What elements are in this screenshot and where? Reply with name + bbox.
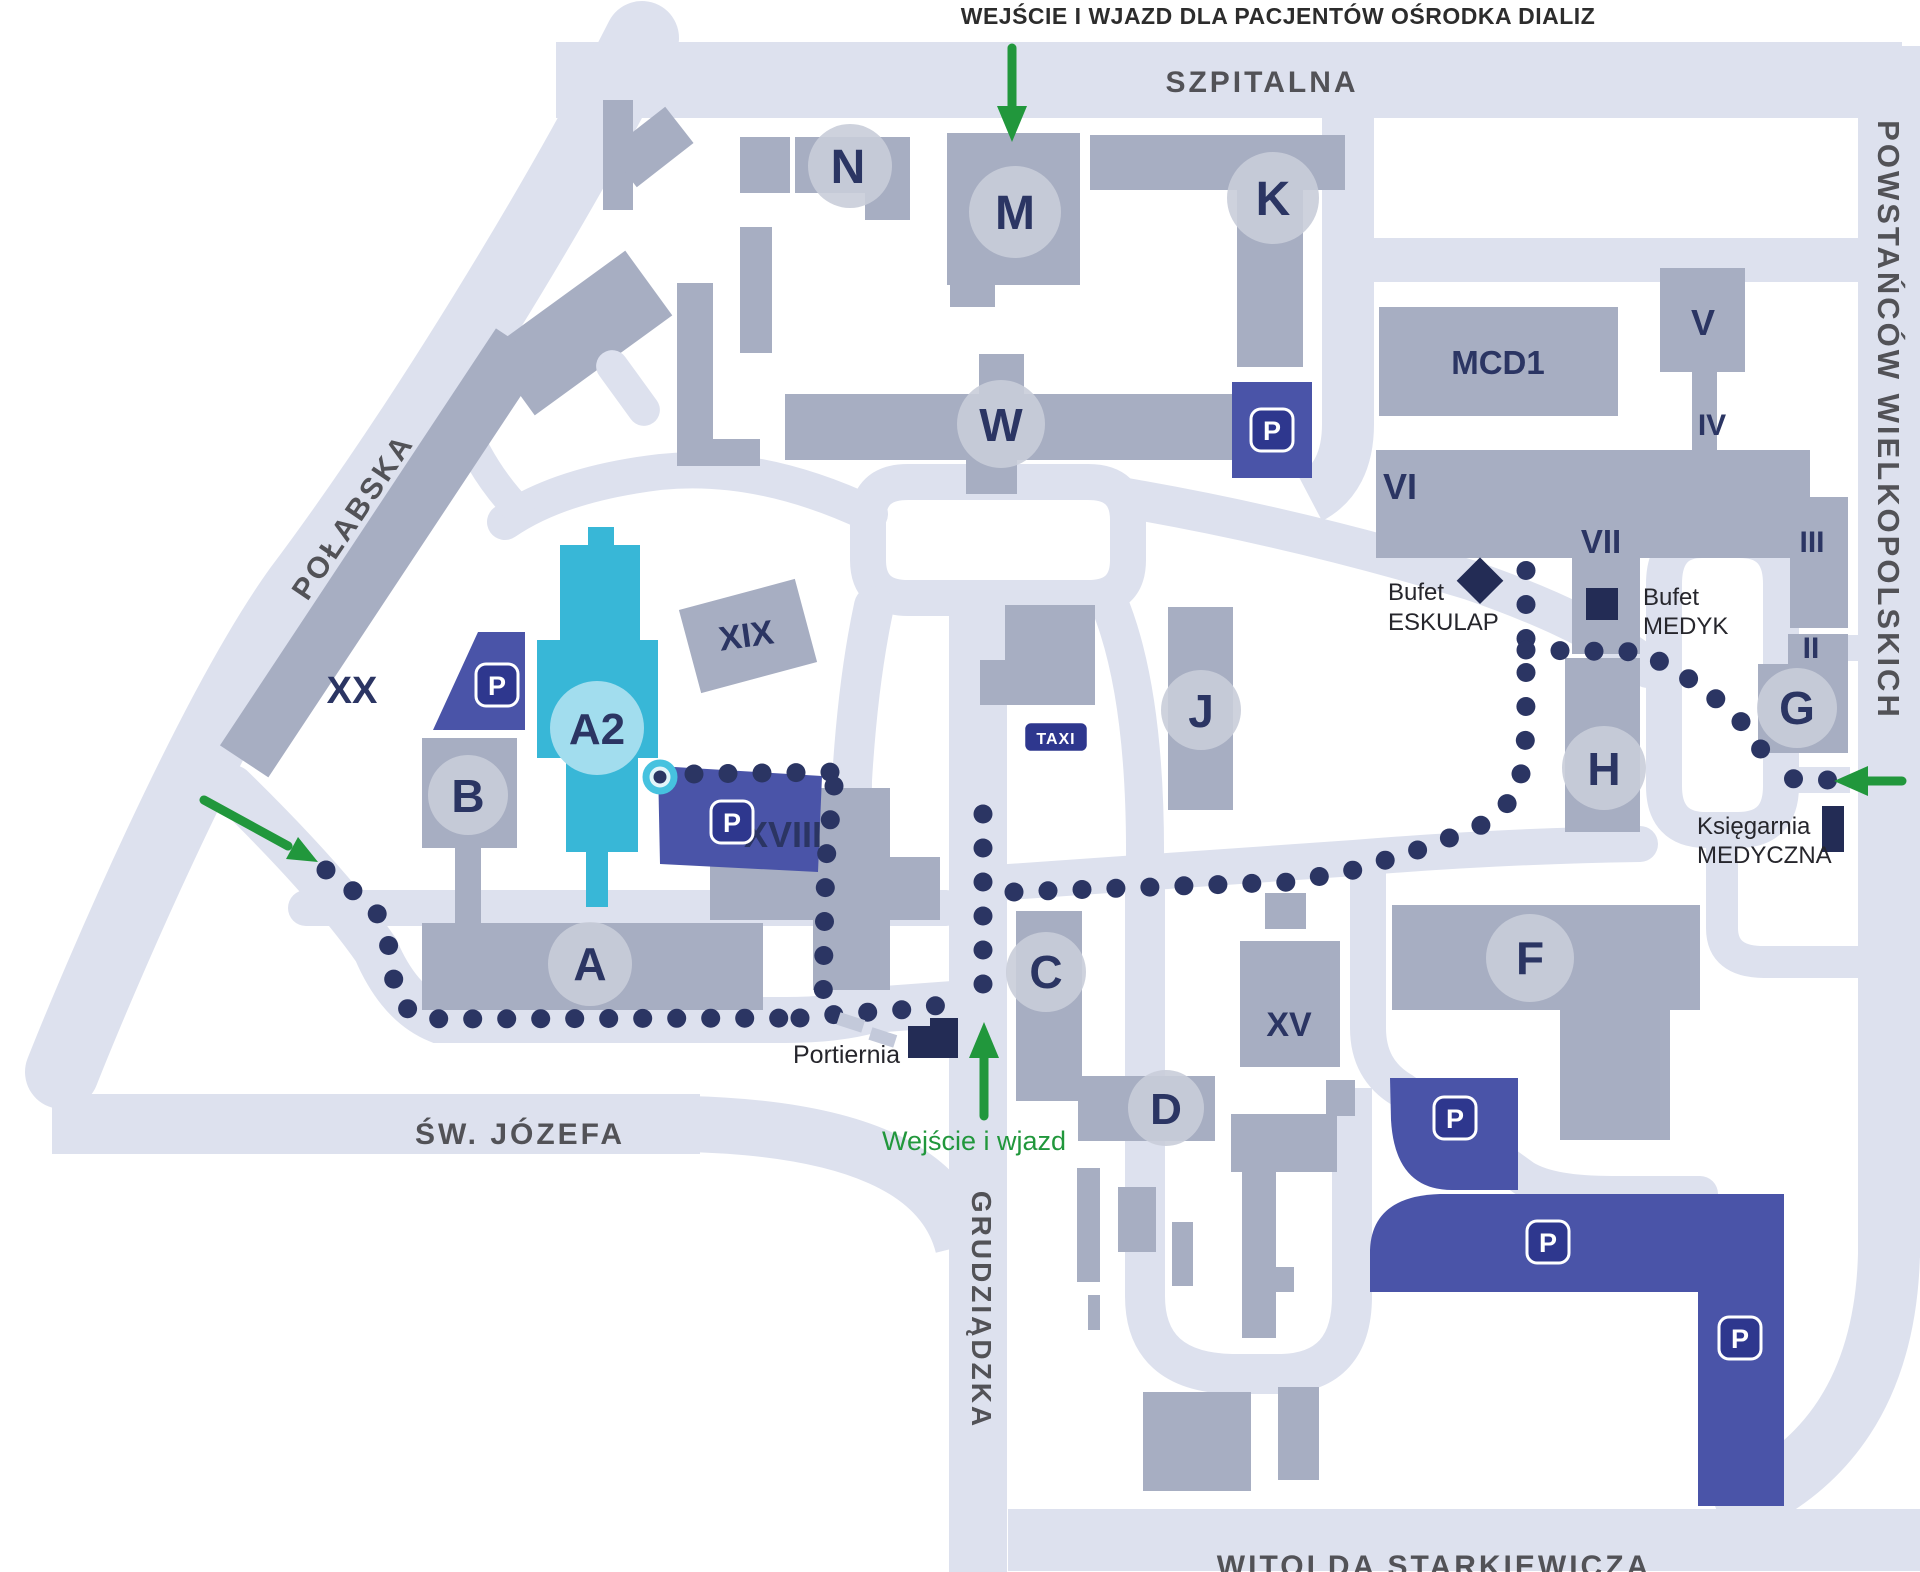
route-start-marker bbox=[646, 763, 674, 791]
route-dot bbox=[892, 1000, 911, 1019]
bufet-medyk-marker bbox=[1586, 588, 1618, 620]
route-dot bbox=[1408, 841, 1427, 860]
route-dot bbox=[1784, 769, 1803, 788]
route-dot bbox=[974, 975, 993, 994]
route-dot bbox=[1706, 689, 1725, 708]
building-unlabeled bbox=[677, 283, 713, 466]
route-dot bbox=[667, 1009, 686, 1028]
route-dot bbox=[1517, 561, 1536, 580]
route-dot bbox=[1517, 641, 1536, 660]
road-stub bbox=[590, 344, 666, 432]
parking-icon: P bbox=[476, 664, 518, 706]
ksiegarnia-label-2: MEDYCZNA bbox=[1697, 842, 1832, 869]
parking-icon-letter: P bbox=[1731, 1324, 1749, 1354]
route-dot bbox=[384, 970, 403, 989]
route-dot bbox=[1208, 875, 1227, 894]
route-dot bbox=[1619, 642, 1638, 661]
route-dot bbox=[565, 1009, 584, 1028]
parking-icon: P bbox=[1527, 1221, 1569, 1263]
building-ii-label: II bbox=[1803, 632, 1820, 665]
route-dot bbox=[701, 1009, 720, 1028]
route-dot bbox=[974, 839, 993, 858]
route-dot bbox=[599, 1009, 618, 1028]
route-dot bbox=[791, 1009, 810, 1028]
route-dot bbox=[1585, 642, 1604, 661]
street-jozefa: ŚW. JÓZEFA bbox=[415, 1117, 625, 1151]
route-dot bbox=[398, 999, 417, 1018]
route-dot bbox=[1516, 697, 1535, 716]
building-b-label: B bbox=[451, 770, 484, 822]
building-a-label: A bbox=[573, 938, 606, 990]
building-iii bbox=[1790, 497, 1848, 628]
route-dot bbox=[368, 904, 387, 923]
taxi-label: TAXI bbox=[1036, 731, 1075, 748]
route-dot bbox=[379, 936, 398, 955]
building-xv-label: XV bbox=[1266, 1006, 1312, 1044]
route-dot bbox=[974, 873, 993, 892]
building-xv bbox=[1240, 941, 1340, 1067]
building-unlabeled-center bbox=[980, 660, 1006, 705]
route-dot bbox=[787, 763, 806, 782]
building-n-label: N bbox=[831, 141, 866, 194]
building-w-label: W bbox=[979, 399, 1023, 451]
building-unlabeled bbox=[713, 439, 760, 466]
route-dot bbox=[858, 1003, 877, 1022]
parking-icon: P bbox=[1251, 409, 1293, 451]
campus-map: N M K W MCD1 V IV VI VII III II G H J F … bbox=[0, 0, 1920, 1572]
route-dot bbox=[753, 764, 772, 783]
route-dot bbox=[814, 946, 833, 965]
building-xviii-label: XVIII bbox=[744, 814, 822, 855]
building-vii-label: VII bbox=[1581, 523, 1621, 560]
building-unlabeled bbox=[740, 137, 790, 193]
route-dot bbox=[1516, 731, 1535, 750]
route-dot bbox=[1512, 764, 1531, 783]
building-iii-label: III bbox=[1799, 526, 1824, 559]
building-unlabeled bbox=[740, 227, 772, 353]
building-unlabeled-center bbox=[1005, 605, 1095, 705]
route-dot bbox=[814, 980, 833, 999]
building-a2-label: A2 bbox=[569, 705, 625, 754]
route-dot bbox=[1517, 663, 1536, 682]
map-canvas: N M K W MCD1 V IV VI VII III II G H J F … bbox=[0, 0, 1920, 1572]
route-dot bbox=[1498, 794, 1517, 813]
route-dot bbox=[1818, 771, 1837, 790]
route-dot bbox=[1551, 641, 1570, 660]
route-dot bbox=[1440, 829, 1459, 848]
route-dot bbox=[1242, 874, 1261, 893]
route-dot bbox=[974, 941, 993, 960]
building-vi-label: VI bbox=[1383, 466, 1417, 507]
building-m-label: M bbox=[995, 187, 1035, 240]
route-dot bbox=[1751, 740, 1770, 759]
route-dot bbox=[1106, 879, 1125, 898]
route-dot bbox=[1174, 876, 1193, 895]
route-dot bbox=[1276, 873, 1295, 892]
route-dot bbox=[1310, 867, 1329, 886]
route-dot bbox=[633, 1009, 652, 1028]
building-m-annex bbox=[950, 285, 995, 307]
taxi-badge: TAXI bbox=[1024, 722, 1088, 752]
bufet-medyk-label-1: Bufet bbox=[1643, 584, 1699, 611]
building-v-label: V bbox=[1691, 302, 1715, 343]
parking-icon-letter: P bbox=[723, 808, 741, 838]
route-dot bbox=[974, 805, 993, 824]
building-xix-label: XIX bbox=[716, 613, 776, 658]
parking-icon-letter: P bbox=[488, 671, 506, 701]
building-a2-part bbox=[560, 545, 640, 645]
route-dot bbox=[926, 996, 945, 1015]
building-a2-stem bbox=[586, 852, 608, 907]
building-mcd1-label: MCD1 bbox=[1451, 344, 1545, 381]
route-dot bbox=[531, 1009, 550, 1028]
route-dot bbox=[1471, 816, 1490, 835]
route-dot bbox=[825, 777, 844, 796]
parking-icon-letter: P bbox=[1446, 1104, 1464, 1134]
street-szpitalna: SZPITALNA bbox=[1165, 66, 1358, 99]
route-dot bbox=[685, 765, 704, 784]
street-grudziadzka: GRUDZIĄDZKA bbox=[966, 1191, 997, 1429]
route-dot bbox=[1140, 878, 1159, 897]
parking-icon: P bbox=[1719, 1317, 1761, 1359]
route-dot bbox=[821, 810, 840, 829]
route-dot bbox=[815, 912, 834, 931]
route-dot bbox=[343, 881, 362, 900]
route-dot bbox=[463, 1009, 482, 1028]
portiernia-label: Portiernia bbox=[793, 1041, 900, 1069]
building-g-label: G bbox=[1779, 682, 1815, 734]
bufet-medyk-label-2: MEDYK bbox=[1643, 613, 1728, 640]
parking-icon: P bbox=[711, 801, 753, 843]
route-dot bbox=[1732, 712, 1751, 731]
building-h-label: H bbox=[1587, 743, 1620, 795]
route-dot bbox=[1517, 595, 1536, 614]
parking-icon-letter: P bbox=[1263, 416, 1281, 446]
building-f-label: F bbox=[1516, 932, 1544, 984]
route-dot bbox=[816, 878, 835, 897]
route-dot bbox=[1343, 861, 1362, 880]
route-dot bbox=[1650, 652, 1669, 671]
road-ring-se bbox=[1108, 600, 1145, 860]
building-b-stem bbox=[455, 848, 481, 923]
route-dot bbox=[1376, 851, 1395, 870]
building-iv-label: IV bbox=[1698, 409, 1726, 442]
route-dot bbox=[1039, 881, 1058, 900]
building-k-label: K bbox=[1256, 173, 1291, 226]
route-dot bbox=[1005, 883, 1024, 902]
building-a2-part bbox=[588, 527, 614, 547]
route-dot bbox=[974, 907, 993, 926]
dialysis-entrance-note: WEJŚCIE I WJAZD DLA PACJENTÓW OŚRODKA DI… bbox=[961, 2, 1596, 29]
street-witolda: WITOLDA STARKIEWICZA bbox=[1217, 1550, 1651, 1572]
building-j-label: J bbox=[1188, 685, 1214, 737]
road-ring-west bbox=[505, 470, 870, 522]
parking-icon-letter: P bbox=[1539, 1228, 1557, 1258]
bufet-eskulap-label-2: ESKULAP bbox=[1388, 609, 1499, 636]
bufet-eskulap-label-1: Bufet bbox=[1388, 579, 1444, 606]
street-powstancow: POWSTAŃCÓW WIELKOPOLSKICH bbox=[1871, 120, 1907, 720]
parking-icon: P bbox=[1434, 1097, 1476, 1139]
building-unlabeled bbox=[1265, 893, 1306, 929]
route-dot bbox=[429, 1009, 448, 1028]
building-d-label: D bbox=[1150, 1085, 1182, 1134]
route-dot bbox=[1679, 669, 1698, 688]
route-dot bbox=[719, 764, 738, 783]
ksiegarnia-label-1: Księgarnia bbox=[1697, 813, 1811, 840]
road-center-ring bbox=[868, 482, 1128, 598]
entrance-south-label: Wejście i wjazd bbox=[882, 1126, 1066, 1156]
route-dot bbox=[769, 1009, 788, 1028]
route-dot bbox=[735, 1009, 754, 1028]
route-dot bbox=[317, 861, 336, 880]
building-c-label: C bbox=[1029, 946, 1062, 998]
route-dot bbox=[497, 1009, 516, 1028]
building-xx-label: XX bbox=[327, 670, 378, 712]
route-dot bbox=[1073, 880, 1092, 899]
